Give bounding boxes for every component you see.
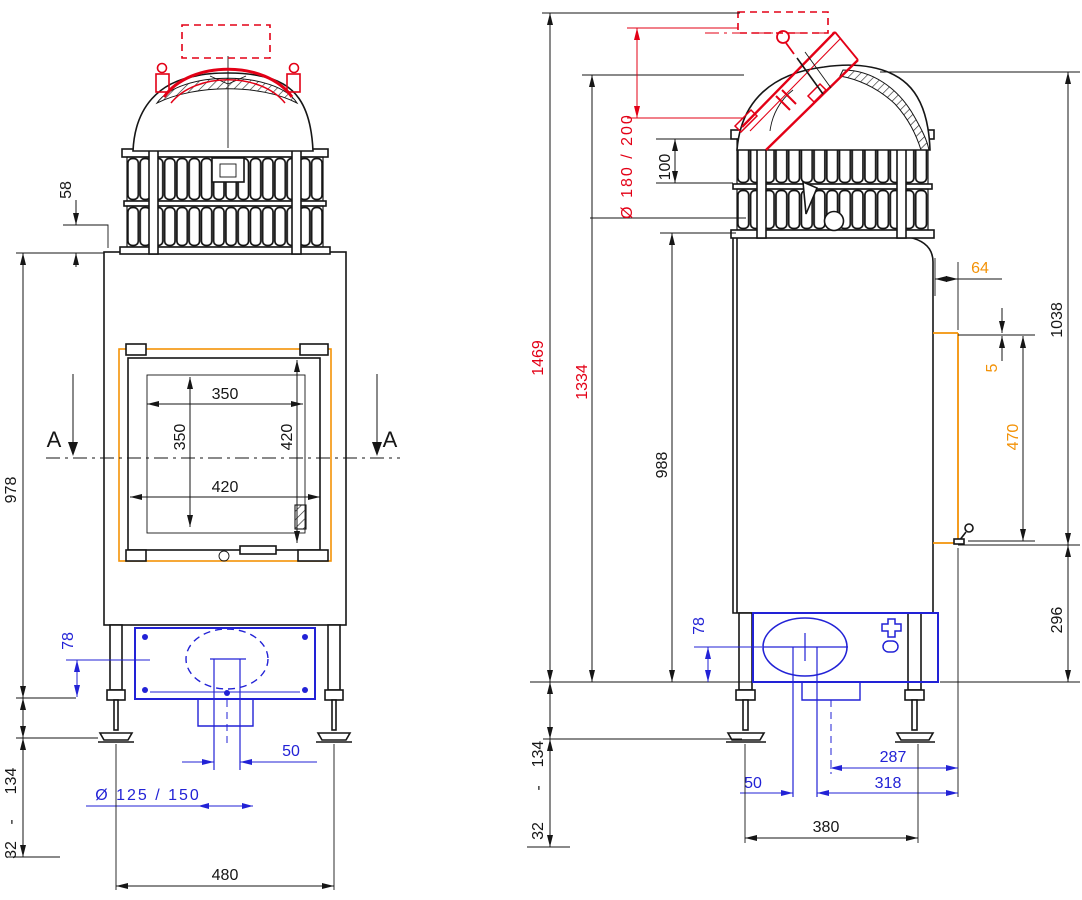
dim-side-base-axis-label: 78 xyxy=(691,617,708,635)
dim-flue-diameter: Ø 180 / 200 xyxy=(619,28,743,219)
dim-duct-to-front: 318 xyxy=(817,775,958,793)
technical-drawing: A A 58 978 134 - 32 350 350 420 420 xyxy=(0,0,1082,900)
front-tie-rod-left xyxy=(149,149,158,254)
front-inlet-duct xyxy=(198,699,253,726)
side-base-slot-hole xyxy=(883,641,898,652)
dim-side-body-height-label: 988 xyxy=(654,452,671,479)
dim-front-duct-offset-label: 50 xyxy=(282,743,300,760)
side-bypass-hole xyxy=(825,212,844,231)
front-view: A A 58 978 134 - 32 350 350 420 420 xyxy=(3,25,400,890)
drawing-canvas: A A 58 978 134 - 32 350 350 420 420 xyxy=(0,0,1082,900)
side-inlet-duct xyxy=(802,682,860,700)
dim-inlet-diameter: Ø 125 / 150 xyxy=(86,787,253,809)
dim-collar-height-label: 1334 xyxy=(574,364,591,400)
front-tie-rod-right xyxy=(292,149,301,254)
dim-frame-gap-label: 5 xyxy=(984,363,1001,372)
dim-side-duct-width: 50 xyxy=(740,775,793,793)
dim-total-height-label: 1469 xyxy=(530,340,547,376)
dim-front-base-axis: 78 xyxy=(60,632,150,697)
side-view: Ø 180 / 200 100 1469 1334 988 134 - 32 7… xyxy=(527,12,1080,847)
dim-total-height: 1469 xyxy=(530,13,550,682)
side-flue-pipe-dashed xyxy=(738,12,828,33)
dim-flue-diameter-label: Ø 180 / 200 xyxy=(619,113,636,219)
side-body xyxy=(733,237,933,613)
dim-fin-section: 100 xyxy=(656,139,733,183)
dim-side-leg-max-label: 134 xyxy=(530,741,547,768)
dim-front-leg-max-label: 134 xyxy=(3,768,20,795)
dim-duct-center-to-front-label: 287 xyxy=(880,749,907,766)
dim-door-frame-height-label: 470 xyxy=(1005,424,1022,451)
dim-glass-width-label: 350 xyxy=(212,386,239,403)
dim-fin-to-body-label: 58 xyxy=(58,181,75,199)
dim-front-body-height-label: 978 xyxy=(3,477,20,504)
dim-front-duct-offset: 50 xyxy=(182,743,317,762)
dim-fin-to-body: 58 xyxy=(16,181,108,267)
dim-glass-height-label: 350 xyxy=(172,424,189,451)
section-marker-left: A xyxy=(47,427,62,452)
front-body xyxy=(104,252,346,625)
dim-frame-depth: 64 xyxy=(935,260,1002,279)
dim-front-base-axis-label: 78 xyxy=(60,632,77,650)
dim-front-leg-min-label: 32 xyxy=(3,841,20,859)
dim-base-zone-height-label: 296 xyxy=(1049,607,1066,634)
dim-front-range-sep-label: - xyxy=(3,819,20,824)
front-flue-pipe-dashed xyxy=(182,25,270,58)
dim-dome-height: 1038 xyxy=(1049,72,1068,545)
dim-side-leg-spacing-label: 380 xyxy=(813,819,840,836)
dim-door-height-label: 420 xyxy=(279,424,296,451)
dim-duct-to-front-label: 318 xyxy=(875,775,902,792)
dim-base-zone-height: 296 xyxy=(1049,545,1068,682)
dim-collar-height: 1334 xyxy=(574,75,592,682)
section-marker-right: A xyxy=(383,427,398,452)
dim-side-body-height: 988 xyxy=(654,233,672,682)
dim-front-height-chain: 978 134 - 32 xyxy=(3,253,98,859)
dim-frame-gap: 5 xyxy=(984,308,1002,372)
dim-frame-depth-label: 64 xyxy=(971,260,989,277)
side-door-handle xyxy=(965,524,973,532)
dim-front-leg-spacing: 480 xyxy=(116,744,334,890)
side-legs xyxy=(726,613,935,742)
side-door-frame xyxy=(933,333,973,544)
dim-dome-height-label: 1038 xyxy=(1049,302,1066,338)
dim-front-leg-spacing-label: 480 xyxy=(212,867,239,884)
front-fin-stack xyxy=(120,141,330,254)
dim-door-width-label: 420 xyxy=(212,479,239,496)
dim-door-frame-height: 470 xyxy=(1005,336,1023,541)
dim-fin-section-label: 100 xyxy=(657,154,674,181)
front-legs xyxy=(98,625,352,742)
dim-side-leg-min-label: 32 xyxy=(530,822,547,840)
dim-side-duct-width-label: 50 xyxy=(744,775,762,792)
dim-side-range-sep-label: - xyxy=(530,785,547,790)
dim-side-height-chain: 134 - 32 xyxy=(530,682,550,847)
side-base-cross-hole xyxy=(882,619,901,637)
dim-inlet-diameter-label: Ø 125 / 150 xyxy=(95,787,201,804)
dim-duct-center-to-front: 287 xyxy=(830,749,958,768)
